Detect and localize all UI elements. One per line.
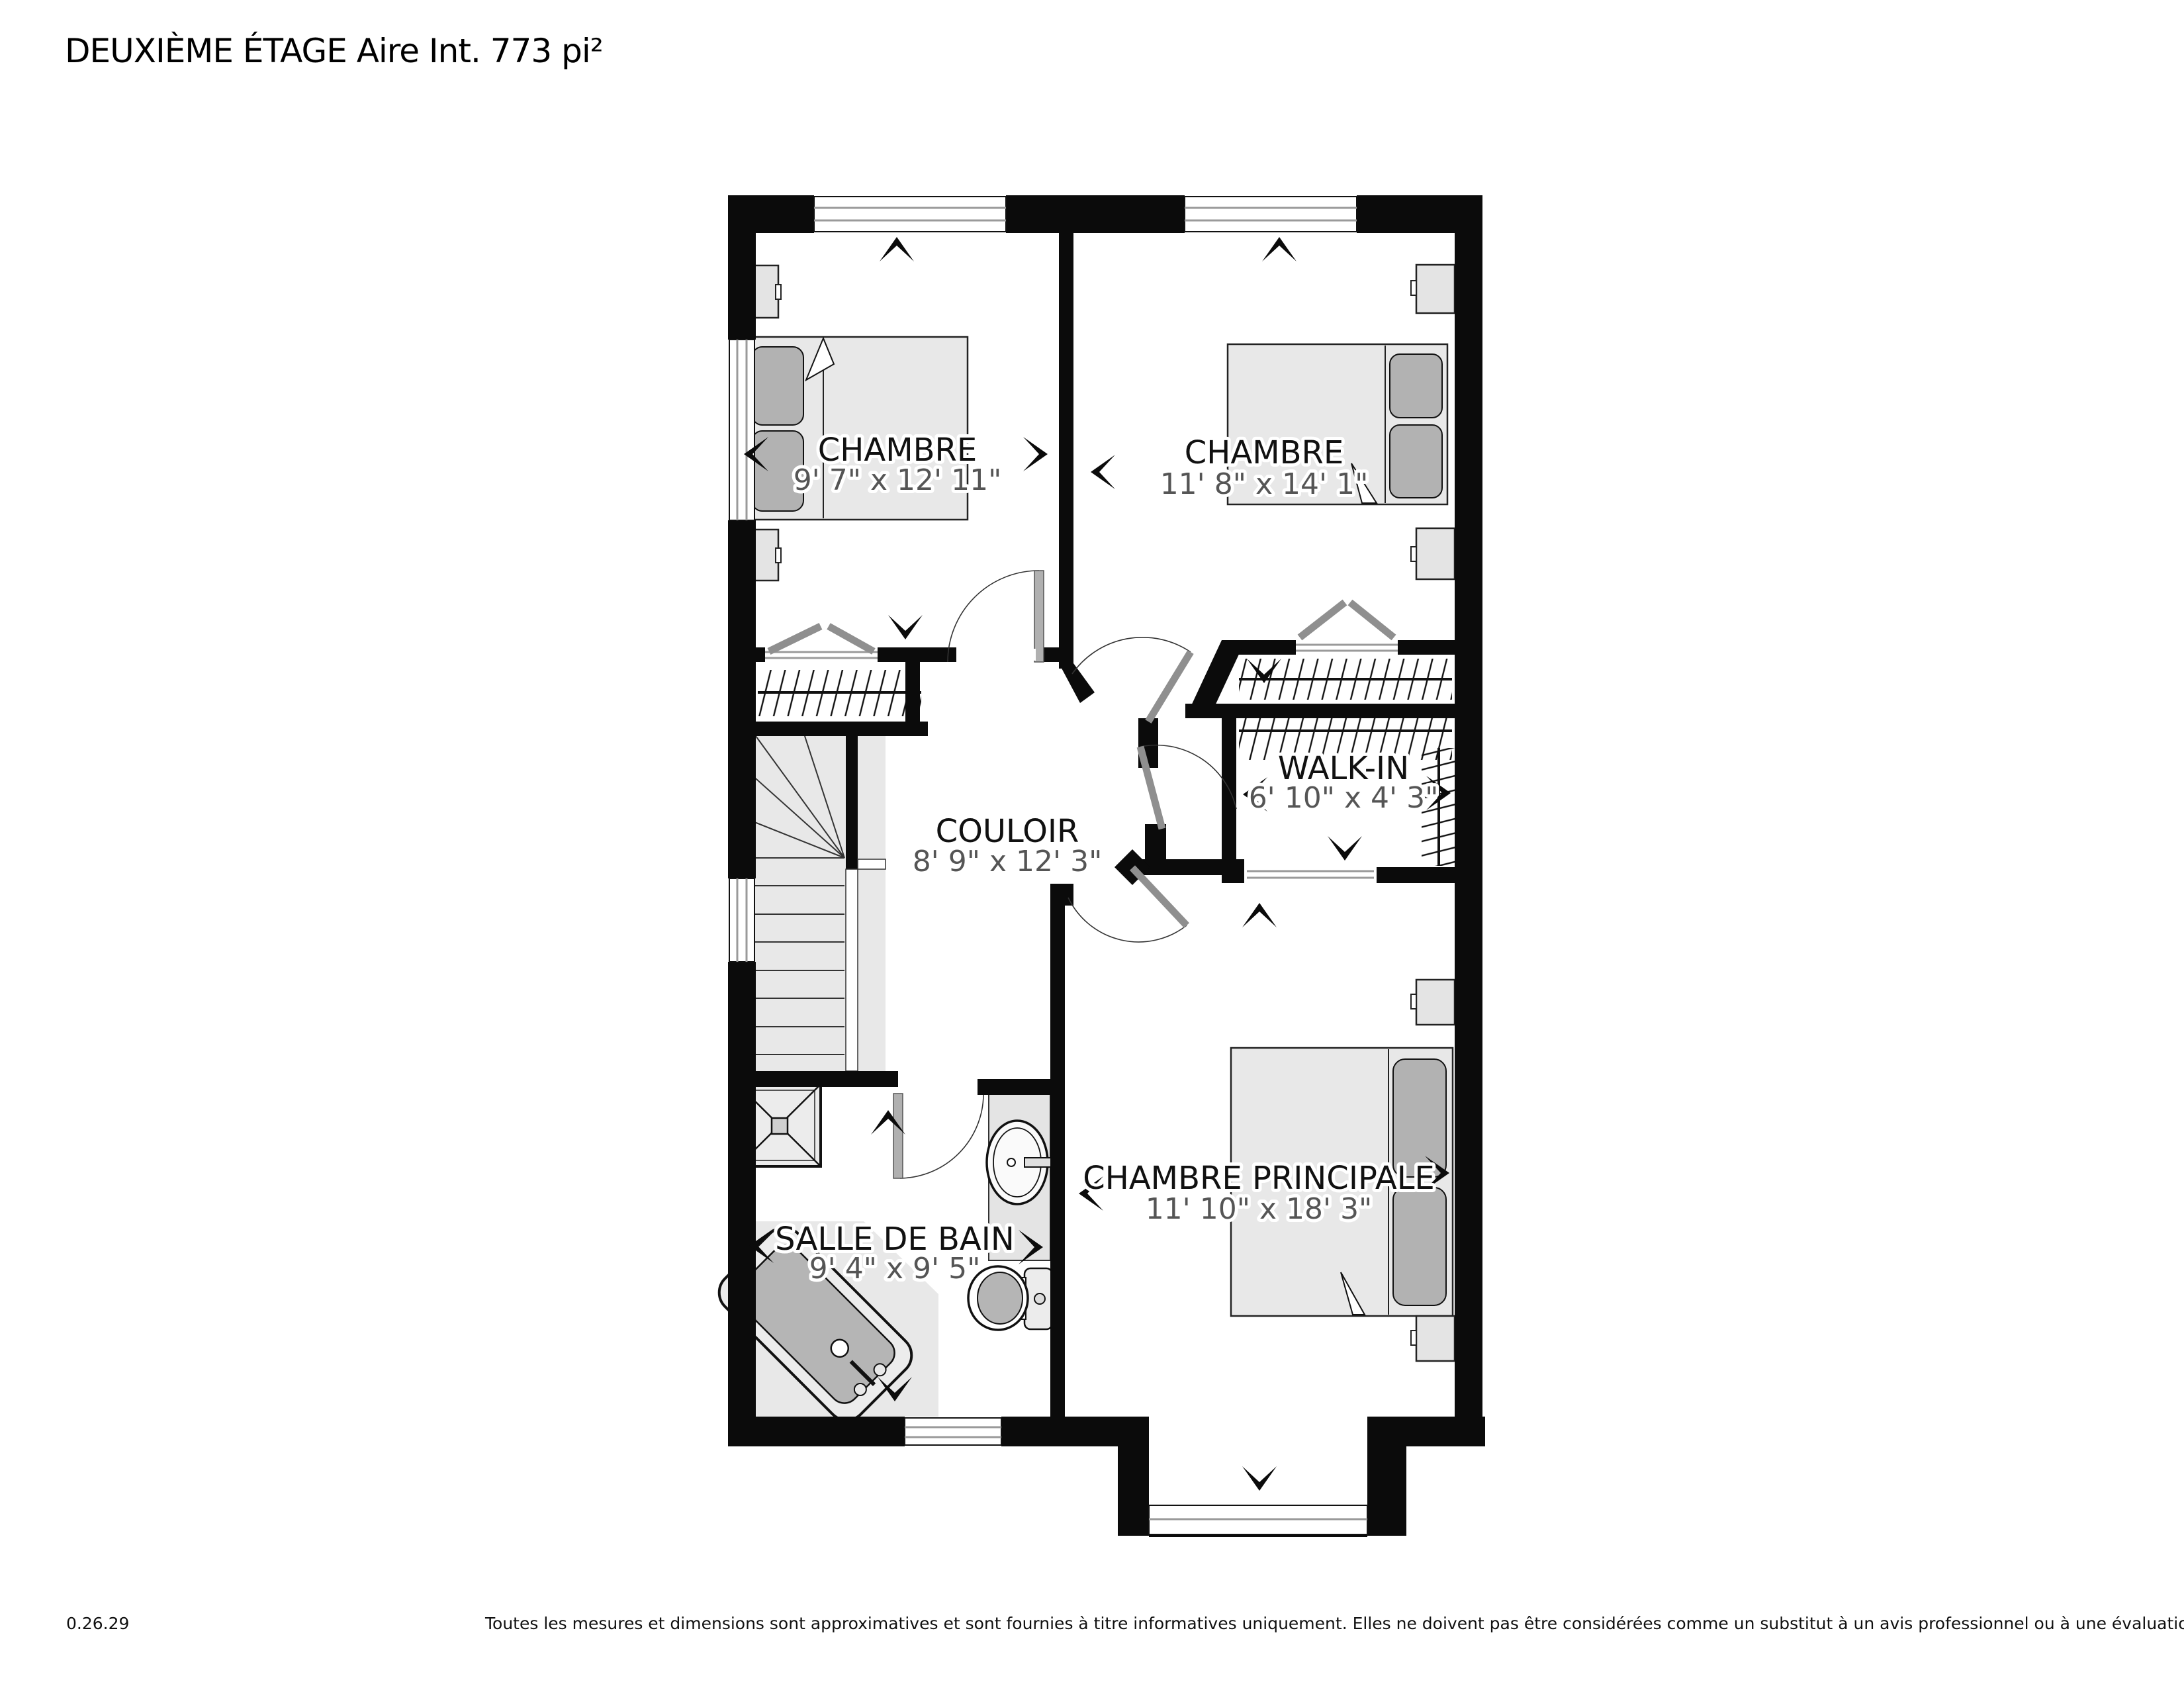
wall-bathroom-master-divider	[1050, 884, 1065, 1446]
window-bottom-master	[1149, 1505, 1367, 1534]
wall-left	[728, 520, 756, 878]
dresser-handle	[776, 548, 781, 563]
pillow	[1390, 425, 1442, 498]
wall-left	[728, 195, 756, 340]
toilet	[968, 1266, 1052, 1330]
sink-drain	[1007, 1158, 1015, 1166]
closet-opening	[765, 648, 878, 661]
window-top-bedroom-1	[814, 197, 1006, 232]
floorplan-drawing: CHAMBRE 9' 7" x 12' 11" CHAMBRE 11' 8" x…	[0, 0, 2184, 1688]
doorway-bedroom-1	[956, 649, 1036, 661]
version-number: 0.26.29	[66, 1614, 129, 1633]
night-stand	[1416, 980, 1455, 1025]
window-left-bedroom-1	[729, 340, 754, 520]
wall-closet-1-east	[905, 662, 920, 722]
room-dims-bathroom: 9' 4" x 9' 5"	[809, 1252, 981, 1286]
stair-divider-wall	[846, 736, 858, 869]
staircase	[738, 736, 886, 1071]
wall-nib-master-door	[1065, 884, 1073, 906]
wall-hinge-nib-walkin	[1145, 824, 1166, 861]
sink-faucet	[1024, 1158, 1051, 1167]
wall-left	[728, 962, 756, 1446]
wall-walkin-west	[1222, 718, 1236, 877]
night-stand-handle	[1411, 1331, 1416, 1345]
wall-bedroom-1-south	[878, 647, 956, 662]
room-label-bedroom-2: CHAMBRE	[1185, 434, 1343, 471]
wall-bump-left	[1118, 1417, 1149, 1536]
disclaimer-text: Toutes les mesures et dimensions sont ap…	[485, 1614, 2153, 1633]
pillow	[1390, 354, 1442, 418]
shower-drain	[772, 1118, 788, 1134]
night-stand	[1416, 528, 1455, 579]
room-dims-couloir: 8' 9" x 12' 3"	[913, 845, 1103, 878]
floor-bump-out	[1149, 1417, 1367, 1509]
room-dims-bedroom-2: 11' 8" x 14' 1"	[1160, 467, 1369, 501]
wall-bedroom-divider	[1059, 233, 1073, 669]
door-leaf	[893, 1094, 903, 1178]
stair-area	[738, 736, 886, 1071]
night-stand-handle	[1411, 547, 1416, 561]
wall-closet-1-south	[728, 722, 928, 736]
window-left-stairs	[729, 878, 754, 962]
room-dims-bedroom-1: 9' 7" x 12' 11"	[794, 463, 1002, 497]
floorplan-page: DEUXIÈME ÉTAGE Aire Int. 773 pi²	[0, 0, 2184, 1688]
night-stand	[1416, 265, 1455, 313]
window-bottom-bathroom	[905, 1418, 1001, 1445]
stair-handrail	[846, 869, 858, 1071]
door-leaf	[1034, 571, 1044, 662]
pillow	[1393, 1188, 1446, 1305]
room-dims-master-bedroom: 11' 10" x 18' 3"	[1146, 1192, 1373, 1226]
wall-bathroom-north	[978, 1079, 1053, 1095]
wall-bottom	[728, 1417, 905, 1446]
wall-closet-2-south	[1185, 704, 1455, 718]
wall-bump-right	[1367, 1417, 1406, 1536]
night-stand	[1416, 1316, 1455, 1361]
window-top-bedroom-2	[1185, 197, 1357, 232]
toilet-button	[1034, 1293, 1045, 1304]
wall-bedroom-1-south	[756, 647, 765, 662]
wall-stairs-south	[728, 1071, 898, 1087]
closet-opening	[1296, 641, 1398, 654]
night-stand-handle	[1411, 281, 1416, 295]
toilet-seat	[978, 1272, 1023, 1324]
wall-walkin-south	[1377, 867, 1455, 883]
stair-handrail-top	[858, 859, 886, 869]
wall-right	[1455, 195, 1482, 1446]
room-label-master-bedroom: CHAMBRE PRINCIPALE	[1083, 1160, 1435, 1197]
wall-top	[1006, 195, 1185, 233]
pillow	[752, 347, 803, 425]
room-dims-walk-in: 6' 10" x 4' 3"	[1249, 781, 1439, 815]
wall-bedroom-2-south	[1398, 640, 1455, 655]
night-stand-handle	[1411, 994, 1416, 1009]
dresser-handle	[776, 285, 781, 299]
